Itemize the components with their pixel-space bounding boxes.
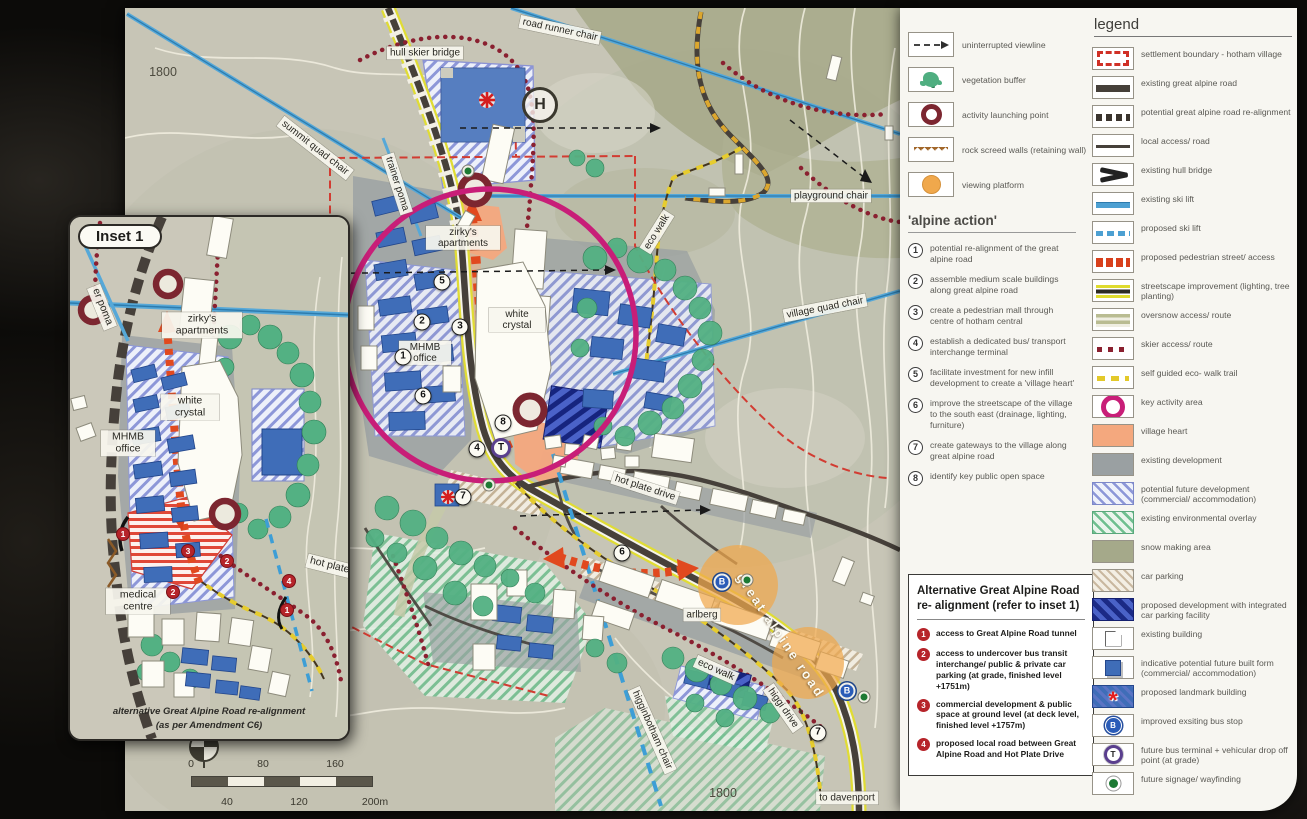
blue-line-swatch bbox=[1092, 192, 1134, 215]
legend-item: existing ski lift bbox=[1092, 192, 1292, 215]
legend-item-label: future bus terminal + vehicular drop off… bbox=[1141, 743, 1292, 766]
legend-item-label: proposed pedestrian street/ access bbox=[1141, 250, 1275, 262]
alt-road-title: Alternative Great Alpine Road re- alignm… bbox=[917, 584, 1085, 620]
salmon-fill-swatch bbox=[1092, 424, 1134, 447]
legend-item-label: local access/ road bbox=[1141, 134, 1210, 146]
alt-road-badge-2a: 2 bbox=[220, 554, 234, 568]
legend-item: snow making area bbox=[1092, 540, 1292, 563]
legend-panel: uninterrupted viewline vegetation buffer… bbox=[900, 8, 1297, 811]
legend-item: potential great alpine road re-alignment bbox=[1092, 105, 1292, 128]
alt-road-text: proposed local road between Great Alpine… bbox=[936, 738, 1085, 760]
inset-caption-line2: (as per Amendment C6) bbox=[70, 719, 348, 733]
alpine-action-item: 4 establish a dedicated bus/ transport i… bbox=[908, 336, 1076, 358]
alpine-action-item: 7 create gateways to the village along g… bbox=[908, 440, 1076, 462]
bus-terminal-icon: T bbox=[491, 438, 511, 458]
scale-tick: 200m bbox=[362, 796, 388, 808]
action-badge-6-se: 6 bbox=[614, 545, 631, 562]
action-badge-6: 6 bbox=[415, 388, 432, 405]
magenta-ring-swatch bbox=[1092, 395, 1134, 418]
legend-item: village heart bbox=[1092, 424, 1292, 447]
red-dashed-rect-swatch bbox=[1092, 47, 1134, 70]
alt-road-badge-4: 4 bbox=[282, 574, 296, 588]
scale-tick: 40 bbox=[221, 796, 233, 808]
dashed-arrow-swatch bbox=[908, 32, 954, 57]
navy-stripes-swatch bbox=[1092, 598, 1134, 621]
legend-item: rock screed walls (retaining wall) bbox=[908, 137, 1088, 162]
scale-ticks-bottom: 40 120 200m bbox=[191, 796, 421, 808]
alpine-action-item: 6 improve the streetscape of the village… bbox=[908, 398, 1076, 431]
helipad-letter: H bbox=[534, 96, 546, 114]
action-number-ring: 6 bbox=[908, 398, 923, 413]
alt-road-item: 2 access to undercover bus transit inter… bbox=[917, 648, 1085, 692]
alt-road-number: 4 bbox=[917, 738, 930, 751]
label-to-davenport: to davenport bbox=[816, 791, 878, 804]
action-number-ring: 8 bbox=[908, 471, 923, 486]
helipad-icon: H bbox=[522, 87, 558, 123]
legend-item: indicative potential future built form (… bbox=[1092, 656, 1292, 679]
terminal-t-circle-swatch bbox=[1092, 743, 1134, 766]
bridge-x-swatch bbox=[1092, 163, 1134, 186]
scale-tick: 80 bbox=[257, 758, 269, 770]
zigzag-swatch bbox=[908, 137, 954, 162]
action-number-ring: 4 bbox=[908, 336, 923, 351]
action-number-ring: 3 bbox=[908, 305, 923, 320]
inset-caption: alternative Great Alpine Road re-alignme… bbox=[70, 705, 348, 734]
yellow-black-line-swatch bbox=[1092, 279, 1134, 302]
alt-road-title-line1: Alternative Great Alpine Road bbox=[917, 584, 1085, 599]
inset-label-medical-centre: medical centre bbox=[106, 588, 170, 614]
green-dot-swatch bbox=[1092, 772, 1134, 795]
legend-item: skier access/ route bbox=[1092, 337, 1292, 360]
action-badge-8: 8 bbox=[495, 415, 512, 432]
orange-circle-swatch bbox=[908, 172, 954, 197]
alt-road-title-line2: re- alignment (refer to inset 1) bbox=[917, 599, 1085, 614]
label-contour-1800-se: 1800 bbox=[706, 785, 740, 801]
legend-item-label: proposed ski lift bbox=[1141, 221, 1201, 233]
gray-fill-swatch bbox=[1092, 453, 1134, 476]
alpine-action-list: 1 potential re-alignment of the great al… bbox=[908, 243, 1076, 486]
symbol-list: uninterrupted viewline vegetation buffer… bbox=[908, 32, 1088, 197]
dark-red-ring-swatch bbox=[908, 102, 954, 127]
legend-left-column: uninterrupted viewline vegetation buffer… bbox=[908, 32, 1088, 495]
legend-item: proposed development with integrated car… bbox=[1092, 598, 1292, 621]
olive-lines-swatch bbox=[1092, 308, 1134, 331]
legend-item-label: activity launching point bbox=[962, 108, 1048, 120]
legend-item: settlement boundary - hotham village bbox=[1092, 47, 1292, 70]
inset-label-zirkys: zirky's apartments bbox=[162, 312, 242, 338]
action-badge-1: 1 bbox=[395, 349, 412, 366]
alpine-action-section: 'alpine action' 1 potential re-alignment… bbox=[908, 213, 1076, 486]
blue-hatch-swatch bbox=[1092, 482, 1134, 505]
alt-road-number: 1 bbox=[917, 628, 930, 641]
legend-item-label: existing building bbox=[1141, 627, 1202, 639]
thin-dark-line-swatch bbox=[1092, 134, 1134, 157]
legend-item-label: rock screed walls (retaining wall) bbox=[962, 143, 1086, 155]
action-text: improve the streetscape of the village t… bbox=[930, 398, 1076, 431]
legend-item-label: existing environmental overlay bbox=[1141, 511, 1257, 523]
legend-item: existing environmental overlay bbox=[1092, 511, 1292, 534]
legend-item-label: uninterrupted viewline bbox=[962, 38, 1046, 50]
action-badge-4: 4 bbox=[469, 441, 486, 458]
legend-item: existing building bbox=[1092, 627, 1292, 650]
scale-tick: 120 bbox=[290, 796, 308, 808]
action-badge-7-se: 7 bbox=[810, 725, 827, 742]
inset-panel: Inset 1 er poma zirky's apartments white… bbox=[68, 215, 350, 741]
alt-road-badge-2b: 2 bbox=[166, 585, 180, 599]
alt-road-badge-3: 3 bbox=[181, 544, 195, 558]
action-text: assemble medium scale buildings along gr… bbox=[930, 274, 1076, 296]
dark-road-line-swatch bbox=[1092, 76, 1134, 99]
inset-map-graphic bbox=[70, 217, 348, 739]
alt-road-text: commercial development & public space at… bbox=[936, 699, 1085, 732]
legend-item: streetscape improvement (lighting, tree … bbox=[1092, 279, 1292, 302]
inset-label-white-crystal: white crystal bbox=[161, 394, 219, 420]
green-hatch-swatch bbox=[1092, 511, 1134, 534]
action-text: create gateways to the village along gre… bbox=[930, 440, 1076, 462]
orange-blocks-swatch bbox=[1092, 250, 1134, 273]
alpine-action-item: 5 facilitate investment for new infill d… bbox=[908, 367, 1076, 389]
signage-dot-icon-3 bbox=[741, 574, 754, 587]
legend-item: self guided eco- walk trail bbox=[1092, 366, 1292, 389]
legend-item: future bus terminal + vehicular drop off… bbox=[1092, 743, 1292, 766]
legend-item-label: existing ski lift bbox=[1141, 192, 1194, 204]
legend-item-label: snow making area bbox=[1141, 540, 1211, 552]
legend-item-label: proposed landmark building bbox=[1141, 685, 1247, 697]
action-text: establish a dedicated bus/ transport int… bbox=[930, 336, 1076, 358]
scale-ticks-top: 0 80 160 bbox=[191, 758, 421, 770]
action-text: identify key public open space bbox=[930, 471, 1045, 486]
legend-title: legend bbox=[1094, 16, 1292, 37]
inset-title: Inset 1 bbox=[78, 224, 162, 249]
bus-b-circle-swatch bbox=[1092, 714, 1134, 737]
dark-dashed-blocks-swatch bbox=[1092, 105, 1134, 128]
legend-item-label: self guided eco- walk trail bbox=[1141, 366, 1238, 378]
legend-item: existing hull bridge bbox=[1092, 163, 1292, 186]
legend-item: key activity area bbox=[1092, 395, 1292, 418]
legend-item-label: potential future development (commercial… bbox=[1141, 482, 1292, 505]
alpine-action-item: 8 identify key public open space bbox=[908, 471, 1076, 486]
alt-road-number: 2 bbox=[917, 648, 930, 661]
action-badge-5: 5 bbox=[434, 274, 451, 291]
alt-road-badge-1b: 1 bbox=[280, 603, 294, 617]
scale-tick: 0 bbox=[188, 758, 194, 770]
action-number-ring: 1 bbox=[908, 243, 923, 258]
legend-item: uninterrupted viewline bbox=[908, 32, 1088, 57]
bus-stop-icon-1: B bbox=[714, 574, 731, 591]
tan-hatch-swatch bbox=[1092, 569, 1134, 592]
legend-item-label: streetscape improvement (lighting, tree … bbox=[1141, 279, 1292, 302]
action-number-ring: 7 bbox=[908, 440, 923, 455]
scale-tick: 160 bbox=[326, 758, 344, 770]
action-text: create a pedestrian mall through centre … bbox=[930, 305, 1076, 327]
alpine-action-item: 2 assemble medium scale buildings along … bbox=[908, 274, 1076, 296]
legend-item-label: indicative potential future built form (… bbox=[1141, 656, 1292, 679]
legend-item: proposed ski lift bbox=[1092, 221, 1292, 244]
label-hull-skier-bridge: hull skier bridge bbox=[387, 46, 463, 59]
master-plan-canvas: hull skier bridge road runner chair summ… bbox=[0, 0, 1307, 819]
alt-road-section: Alternative Great Alpine Road re- alignm… bbox=[908, 574, 1094, 776]
legend-item: oversnow access/ route bbox=[1092, 308, 1292, 331]
legend-item-label: existing development bbox=[1141, 453, 1222, 465]
blue-square-red-star-swatch bbox=[1092, 685, 1134, 708]
legend-item-label: existing hull bridge bbox=[1141, 163, 1212, 175]
action-badge-7: 7 bbox=[455, 489, 472, 506]
signage-dot-icon-2 bbox=[483, 479, 496, 492]
legend-item-label: key activity area bbox=[1141, 395, 1203, 407]
legend-item: future signage/ wayfinding bbox=[1092, 772, 1292, 795]
label-zirkys-apartments: zirky's apartments bbox=[426, 226, 500, 250]
alpine-action-item: 3 create a pedestrian mall through centr… bbox=[908, 305, 1076, 327]
white-building-swatch bbox=[1092, 627, 1134, 650]
signage-dot-icon-4 bbox=[858, 691, 871, 704]
legend-item-label: existing great alpine road bbox=[1141, 76, 1237, 88]
label-playground-chair: playground chair bbox=[791, 189, 871, 202]
action-number-ring: 5 bbox=[908, 367, 923, 382]
alt-road-text: access to undercover bus transit interch… bbox=[936, 648, 1085, 692]
legend-item: improved exsiting bus stop bbox=[1092, 714, 1292, 737]
action-text: potential re-alignment of the great alpi… bbox=[930, 243, 1076, 265]
legend-item-label: skier access/ route bbox=[1141, 337, 1213, 349]
legend-item: vegetation buffer bbox=[908, 67, 1088, 92]
alt-road-item: 1 access to Great Alpine Road tunnel bbox=[917, 628, 1085, 641]
blue-square-swatch bbox=[1092, 656, 1134, 679]
inset-label-mhmb: MHMB office bbox=[101, 430, 155, 456]
red-dots-swatch bbox=[1092, 337, 1134, 360]
legend-item-label: settlement boundary - hotham village bbox=[1141, 47, 1282, 59]
alpine-action-item: 1 potential re-alignment of the great al… bbox=[908, 243, 1076, 265]
alt-road-item: 3 commercial development & public space … bbox=[917, 699, 1085, 732]
legend-item-label: potential great alpine road re-alignment bbox=[1141, 105, 1291, 117]
alt-road-list: 1 access to Great Alpine Road tunnel 2 a… bbox=[917, 628, 1085, 760]
blue-dashed-line-swatch bbox=[1092, 221, 1134, 244]
legend-item-label: proposed development with integrated car… bbox=[1141, 598, 1292, 621]
scale-bar: 0 80 160 40 120 200m bbox=[191, 756, 431, 811]
label-contour-1800-nw: 1800 bbox=[146, 64, 180, 80]
legend-item-label: future signage/ wayfinding bbox=[1141, 772, 1241, 784]
bus-stop-icon-2: B bbox=[839, 683, 856, 700]
legend-item: local access/ road bbox=[1092, 134, 1292, 157]
alt-road-item: 4 proposed local road between Great Alpi… bbox=[917, 738, 1085, 760]
legend-item: viewing platform bbox=[908, 172, 1088, 197]
legend-item-label: improved exsiting bus stop bbox=[1141, 714, 1243, 726]
scale-segments bbox=[191, 776, 373, 787]
legend-right-column: legend settlement boundary - hotham vill… bbox=[1092, 16, 1292, 801]
alpine-action-title: 'alpine action' bbox=[908, 213, 1076, 233]
legend-item: activity launching point bbox=[908, 102, 1088, 127]
olive-fill-swatch bbox=[1092, 540, 1134, 563]
alt-road-text: access to Great Alpine Road tunnel bbox=[936, 628, 1077, 641]
legend-item: existing great alpine road bbox=[1092, 76, 1292, 99]
legend-list: settlement boundary - hotham village exi… bbox=[1092, 47, 1292, 795]
legend-item-label: village heart bbox=[1141, 424, 1187, 436]
legend-item-label: car parking bbox=[1141, 569, 1184, 581]
legend-item-label: viewing platform bbox=[962, 178, 1024, 190]
legend-item: potential future development (commercial… bbox=[1092, 482, 1292, 505]
legend-item: proposed landmark building bbox=[1092, 685, 1292, 708]
alt-road-badge-1: 1 bbox=[116, 527, 130, 541]
inset-caption-line1: alternative Great Alpine Road re-alignme… bbox=[70, 705, 348, 719]
legend-item-label: oversnow access/ route bbox=[1141, 308, 1231, 320]
action-text: facilitate investment for new infill dev… bbox=[930, 367, 1076, 389]
legend-item: existing development bbox=[1092, 453, 1292, 476]
label-arlberg: arlberg bbox=[683, 608, 720, 621]
legend-item-label: vegetation buffer bbox=[962, 73, 1026, 85]
vegetation-blob-swatch bbox=[908, 67, 954, 92]
legend-item: proposed pedestrian street/ access bbox=[1092, 250, 1292, 273]
action-badge-3: 3 bbox=[452, 319, 469, 336]
alt-road-number: 3 bbox=[917, 699, 930, 712]
signage-dot-icon-1 bbox=[462, 165, 475, 178]
yellow-dashes-swatch bbox=[1092, 366, 1134, 389]
action-badge-2: 2 bbox=[414, 314, 431, 331]
action-number-ring: 2 bbox=[908, 274, 923, 289]
legend-item: car parking bbox=[1092, 569, 1292, 592]
label-white-crystal: white crystal bbox=[489, 308, 545, 332]
